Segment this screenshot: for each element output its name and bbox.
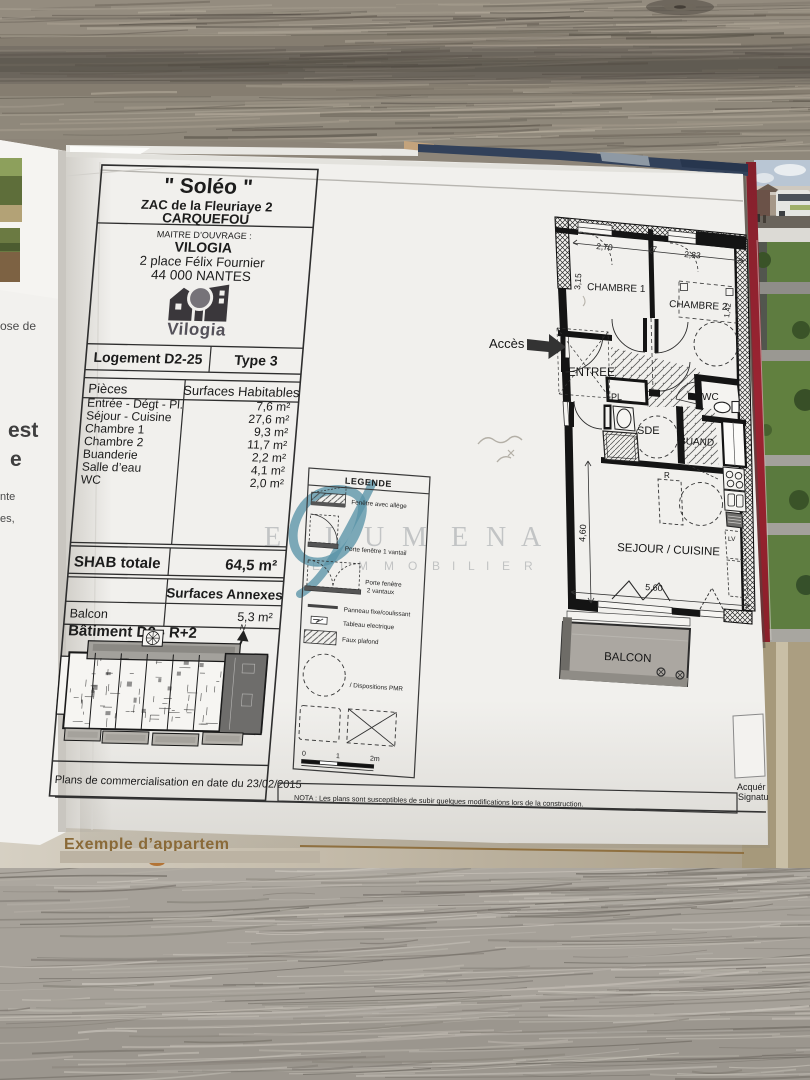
svg-text:I: I: [340, 559, 343, 573]
svg-text:I: I: [452, 559, 455, 573]
svg-text:2,70: 2,70: [596, 241, 614, 252]
svg-text:CHAMBRE 1: CHAMBRE 1: [587, 282, 646, 295]
svg-text:" Soléo ": " Soléo ": [163, 174, 254, 199]
svg-text:Exemple d’appartem: Exemple d’appartem: [64, 836, 230, 853]
svg-text:B: B: [432, 559, 440, 573]
svg-text:2m: 2m: [370, 755, 380, 763]
svg-text:A: A: [521, 522, 542, 553]
svg-text:est: est: [8, 419, 38, 442]
svg-text:I: I: [486, 559, 489, 573]
svg-text:3,15: 3,15: [572, 273, 583, 291]
svg-text:M: M: [384, 559, 394, 573]
svg-text:Bâtiment D2 - R+2: Bâtiment D2 - R+2: [68, 622, 198, 642]
svg-text:WC: WC: [80, 472, 101, 486]
svg-text:PL: PL: [611, 392, 622, 402]
svg-text:Signatu: Signatu: [738, 792, 769, 802]
svg-text:es,: es,: [0, 513, 15, 525]
svg-text:SHAB totale: SHAB totale: [73, 553, 161, 572]
svg-text:R: R: [664, 471, 670, 480]
svg-text:Type 3: Type 3: [234, 352, 279, 369]
svg-text:SDE: SDE: [637, 425, 660, 437]
svg-text:O: O: [408, 559, 417, 573]
svg-text:2,0 m²: 2,0 m²: [249, 476, 284, 491]
svg-text:Surfaces Annexes: Surfaces Annexes: [166, 585, 284, 602]
svg-text:Pièces: Pièces: [88, 381, 129, 397]
svg-text:2,83: 2,83: [684, 249, 702, 260]
svg-text:CARQUEFOU: CARQUEFOU: [162, 210, 250, 227]
svg-text:Balcon: Balcon: [69, 606, 108, 621]
svg-text:N: N: [486, 522, 506, 553]
svg-text:4,60: 4,60: [577, 524, 588, 542]
svg-text:E: E: [264, 522, 281, 553]
svg-text:Accès: Accès: [489, 336, 525, 351]
svg-text:5,60: 5,60: [645, 582, 663, 593]
svg-text:Acquér: Acquér: [737, 782, 766, 792]
svg-text:0: 0: [302, 750, 306, 757]
svg-text:nte: nte: [0, 491, 15, 503]
svg-text:LV: LV: [728, 536, 736, 543]
svg-text:1: 1: [336, 753, 340, 760]
svg-text:L: L: [468, 559, 475, 573]
svg-text:e: e: [10, 448, 22, 471]
svg-text:WC: WC: [702, 392, 719, 403]
svg-text:R: R: [524, 559, 533, 573]
svg-text:BUAND: BUAND: [679, 436, 715, 449]
svg-text:44 000 NANTES: 44 000 NANTES: [151, 267, 252, 284]
svg-text:E: E: [451, 522, 468, 553]
svg-text:Surfaces Habitables: Surfaces Habitables: [183, 383, 301, 400]
svg-text:N: N: [239, 623, 246, 632]
svg-text:BALCON: BALCON: [604, 651, 652, 665]
svg-text:Vilogia: Vilogia: [166, 319, 226, 339]
svg-text:ENTREE: ENTREE: [568, 367, 615, 379]
svg-text:64,5 m²: 64,5 m²: [225, 557, 278, 575]
svg-text:Logement D2-25: Logement D2-25: [93, 349, 203, 367]
svg-text:M: M: [402, 522, 427, 553]
svg-text:ose de: ose de: [0, 319, 36, 333]
svg-text:E: E: [502, 559, 510, 573]
